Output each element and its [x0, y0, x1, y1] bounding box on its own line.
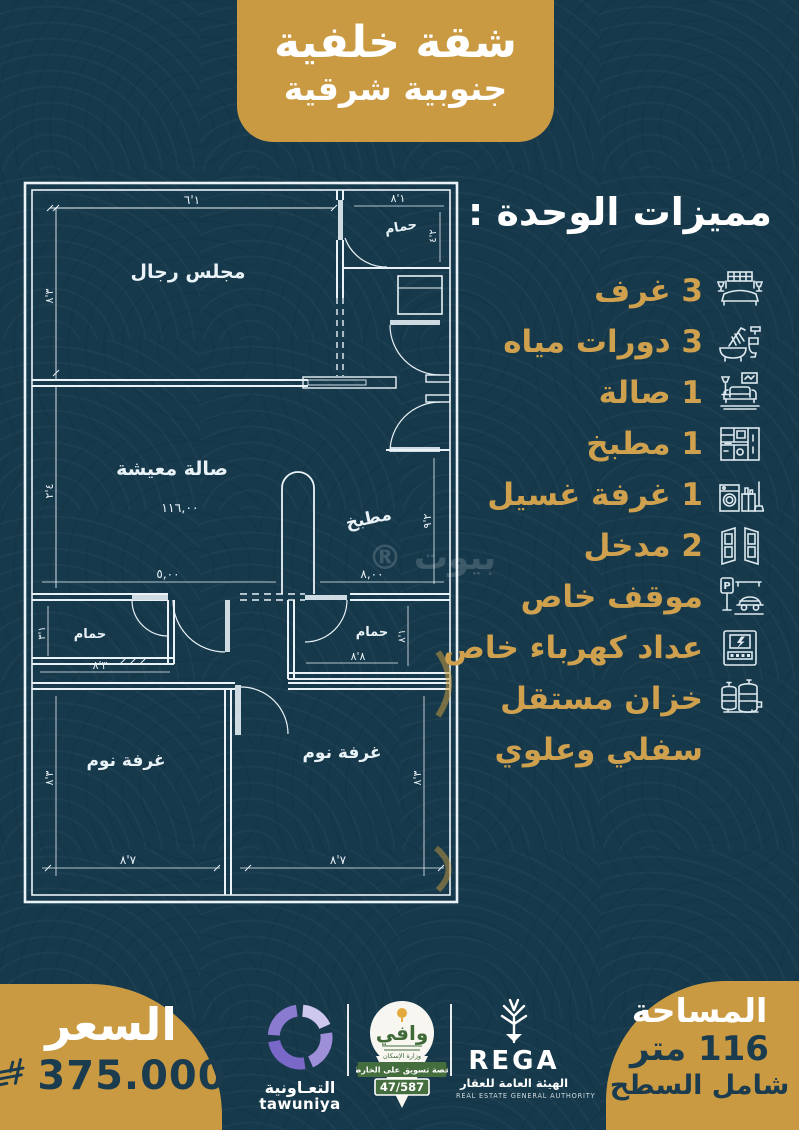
- feature-label: 2 مدخل: [584, 531, 703, 562]
- area-badge: المساحة 116 متر شامل السطح: [606, 981, 799, 1130]
- area-title: المساحة: [606, 991, 793, 1030]
- features-title: مميزات الوحدة :: [450, 190, 790, 234]
- feature-label: 1 مطبخ: [586, 429, 703, 460]
- kitchen-icon: [716, 421, 764, 469]
- area-note: شامل السطح: [606, 1069, 793, 1103]
- dim-bath-left-width: ٣'٨: [93, 659, 108, 672]
- wafi-license-ribbon: رخصة تسويق على الخارطة: [356, 1062, 448, 1077]
- electric-meter-icon: [716, 625, 764, 673]
- dim-bed-left-height: ٣'٨: [43, 770, 56, 785]
- feature-row-entrances: 2 مدخل: [344, 521, 764, 572]
- feature-label: 3 غرف: [594, 276, 703, 307]
- features-list: 3 غرف 3 دورات مياه: [344, 266, 764, 776]
- tawuniya-logo: التعـاونية tawuniya: [256, 1002, 344, 1113]
- water-tank-icon: [716, 676, 764, 724]
- rega-logo: REGA الهيئة العامة للعقار REAL ESTATE GE…: [456, 998, 572, 1100]
- room-label-living: صالة معيشة: [116, 458, 228, 480]
- feature-row-parking: موقف خاص P: [344, 572, 764, 623]
- saudi-riyal-icon: [0, 1057, 29, 1095]
- sofa-icon: [716, 370, 764, 418]
- tawuniya-ring-icon: [265, 1002, 335, 1072]
- feature-row-laundry: 1 غرفة غسيل: [344, 470, 764, 521]
- feature-row-tank-levels: سفلي وعلوي: [344, 725, 764, 776]
- dim-hall-left: ٥,٠٠: [156, 567, 179, 581]
- header-badge: شقة خلفية جنوبية شرقية: [237, 0, 554, 142]
- parking-icon: P: [716, 574, 764, 622]
- room-label-bathroom-left: حمام: [74, 627, 107, 642]
- price-badge: السعر 375.000: [0, 984, 222, 1130]
- feature-row-water-tank: خزان مستقل: [344, 674, 764, 725]
- dim-majlis-width: ١'٦: [184, 193, 200, 207]
- bathroom-icon: [716, 319, 764, 367]
- feature-label: موقف خاص: [521, 582, 703, 613]
- washing-machine-icon: [716, 472, 764, 520]
- rega-palm-icon: [488, 998, 540, 1044]
- room-label-bathroom-top: حمام: [384, 217, 419, 237]
- rega-english-name: REAL ESTATE GENERAL AUTHORITY: [456, 1092, 572, 1100]
- price-value: 375.000: [37, 1053, 226, 1099]
- feature-row-hall: 1 صالة: [344, 368, 764, 419]
- feature-row-kitchen: 1 مطبخ: [344, 419, 764, 470]
- wafi-logo: وافي وزارة الإسكان رخصة تسويق على الخارط…: [356, 1000, 448, 1118]
- feature-label: عداد كهرباء خاص: [443, 633, 703, 664]
- feature-label: 1 غرفة غسيل: [487, 480, 703, 511]
- dim-bed-right-width: ٧'٨: [330, 853, 347, 867]
- dim-bath-left-height: ١'٣: [37, 626, 48, 640]
- empty-icon-spacer: [716, 727, 764, 775]
- room-label-majlis: مجلس رجال: [131, 261, 246, 283]
- area-value: 116 متر: [606, 1030, 793, 1069]
- logo-divider-left: [347, 1004, 349, 1076]
- logo-divider-right: [450, 1004, 452, 1076]
- feature-label: 3 دورات مياه: [503, 327, 703, 358]
- wafi-license-text: رخصة تسويق على الخارطة: [356, 1066, 448, 1075]
- dim-bed-left-width: ٧'٨: [120, 853, 137, 867]
- rega-name: REGA: [456, 1048, 572, 1074]
- apartment-orientation-subtitle: جنوبية شرقية: [237, 69, 554, 109]
- feature-row-rooms: 3 غرف: [344, 266, 764, 317]
- price-title: السعر: [0, 998, 222, 1051]
- feature-label: خزان مستقل: [500, 684, 703, 715]
- feature-row-bathrooms: 3 دورات مياه: [344, 317, 764, 368]
- dim-living-height: ٤'٢: [43, 483, 56, 498]
- dim-top-bath-height: ٢'٤: [428, 229, 439, 243]
- dim-majlis-height: ٣'٨: [43, 288, 56, 303]
- feature-label: 1 صالة: [599, 378, 703, 409]
- bed-icon: [716, 268, 764, 316]
- wafi-ministry-text: وزارة الإسكان: [383, 1052, 421, 1060]
- rega-arabic-name: الهيئة العامة للعقار: [456, 1076, 572, 1090]
- living-area-number: ١١٦,٠٠: [161, 500, 199, 515]
- wafi-license-number: 47/587: [380, 1080, 424, 1094]
- wafi-name: وافي: [376, 1021, 429, 1046]
- wafi-license-number-plate: 47/587: [375, 1079, 429, 1095]
- real-estate-flyer: شقة خلفية جنوبية شرقية: [0, 0, 799, 1130]
- tawuniya-latin-name: tawuniya: [256, 1095, 344, 1113]
- feature-label: سفلي وعلوي: [494, 735, 703, 766]
- feature-row-electric-meter: عداد كهرباء خاص: [344, 623, 764, 674]
- dim-top-bath-width: ١'٨: [391, 192, 406, 205]
- parking-letter: P: [723, 581, 730, 592]
- doors-icon: [716, 523, 764, 571]
- room-label-bedroom-left: غرفة نوم: [86, 751, 165, 771]
- apartment-type-title: شقة خلفية: [237, 18, 554, 69]
